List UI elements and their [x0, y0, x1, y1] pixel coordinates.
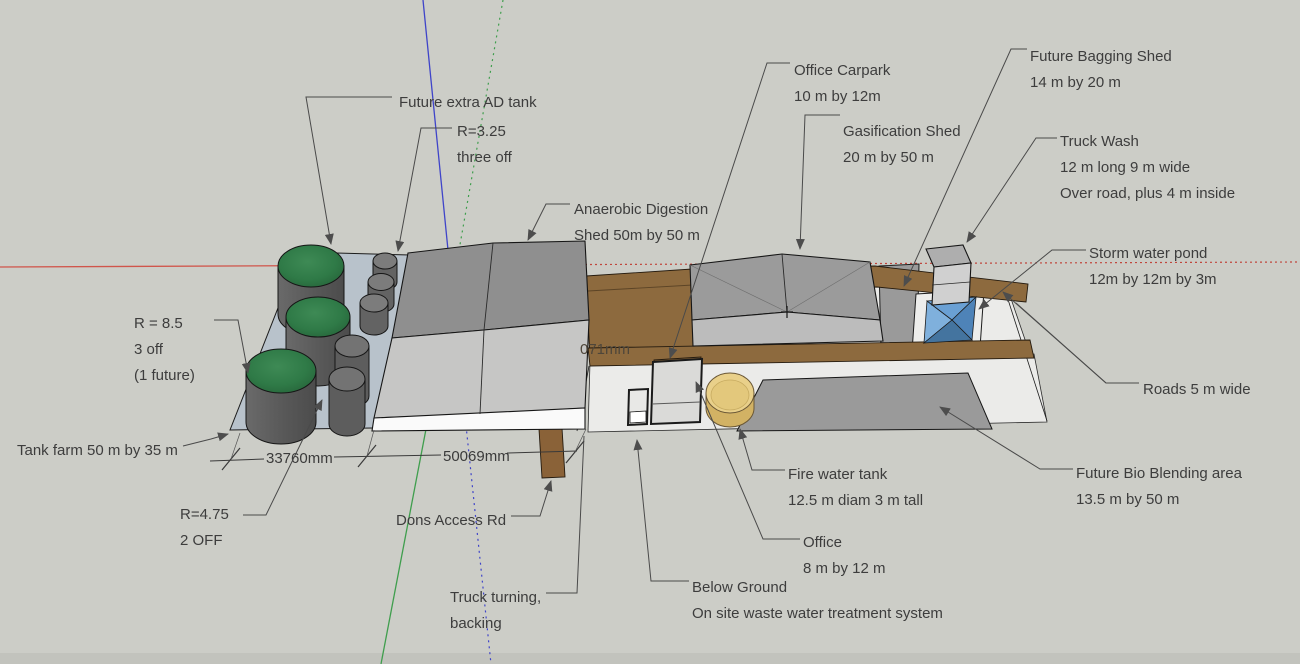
green-digester-tank-3[interactable] — [246, 349, 316, 444]
label-below-ground: Below Ground On site waste water treatme… — [692, 575, 943, 627]
treatment-box[interactable] — [628, 389, 648, 425]
ad-shed[interactable] — [372, 241, 589, 431]
label-dons-access-rd: Dons Access Rd — [396, 508, 506, 534]
fire-water-tank[interactable] — [706, 373, 754, 427]
bio-blending-area[interactable] — [737, 373, 992, 431]
label-future-bagging-shed: Future Bagging Shed 14 m by 20 m — [1030, 44, 1172, 96]
label-fire-water-tank: Fire water tank 12.5 m diam 3 m tall — [788, 462, 923, 514]
label-r325: R=3.25 three off — [457, 119, 512, 171]
label-tank-farm: Tank farm 50 m by 35 m — [17, 438, 178, 464]
label-r475: R=4.75 2 OFF — [180, 502, 229, 554]
sketchup-viewport[interactable]: 071mm — [0, 0, 1300, 664]
model-canvas[interactable]: 071mm — [0, 0, 1300, 664]
medium-tank-2[interactable] — [329, 367, 365, 436]
office-building[interactable] — [651, 359, 702, 424]
label-future-extra-ad-tank: Future extra AD tank — [399, 90, 537, 116]
label-r85: R = 8.5 3 off (1 future) — [134, 311, 195, 389]
label-truck-turning: Truck turning, backing — [450, 585, 541, 637]
label-anaerobic-digestion: Anaerobic Digestion Shed 50m by 50 m — [574, 197, 708, 249]
label-storm-water-pond: Storm water pond 12m by 12m by 3m — [1089, 241, 1217, 293]
label-roads: Roads 5 m wide — [1143, 377, 1251, 403]
label-truck-wash: Truck Wash 12 m long 9 m wide Over road,… — [1060, 129, 1235, 207]
bottom-bar — [0, 653, 1300, 664]
truck-wash-front[interactable] — [932, 263, 971, 305]
dim-text-occluded: 071mm — [580, 341, 630, 358]
label-office-carpark: Office Carpark 10 m by 12m — [794, 58, 890, 110]
label-bio-blending: Future Bio Blending area 13.5 m by 50 m — [1076, 461, 1242, 513]
small-tank-3[interactable] — [360, 294, 388, 335]
dons-access-road[interactable] — [539, 428, 565, 478]
label-gasification-shed: Gasification Shed 20 m by 50 m — [843, 119, 961, 171]
dim-text-50069: 50069mm — [443, 448, 510, 465]
dim-text-33760: 33760mm — [266, 450, 333, 467]
gasification-shed[interactable] — [690, 254, 883, 346]
